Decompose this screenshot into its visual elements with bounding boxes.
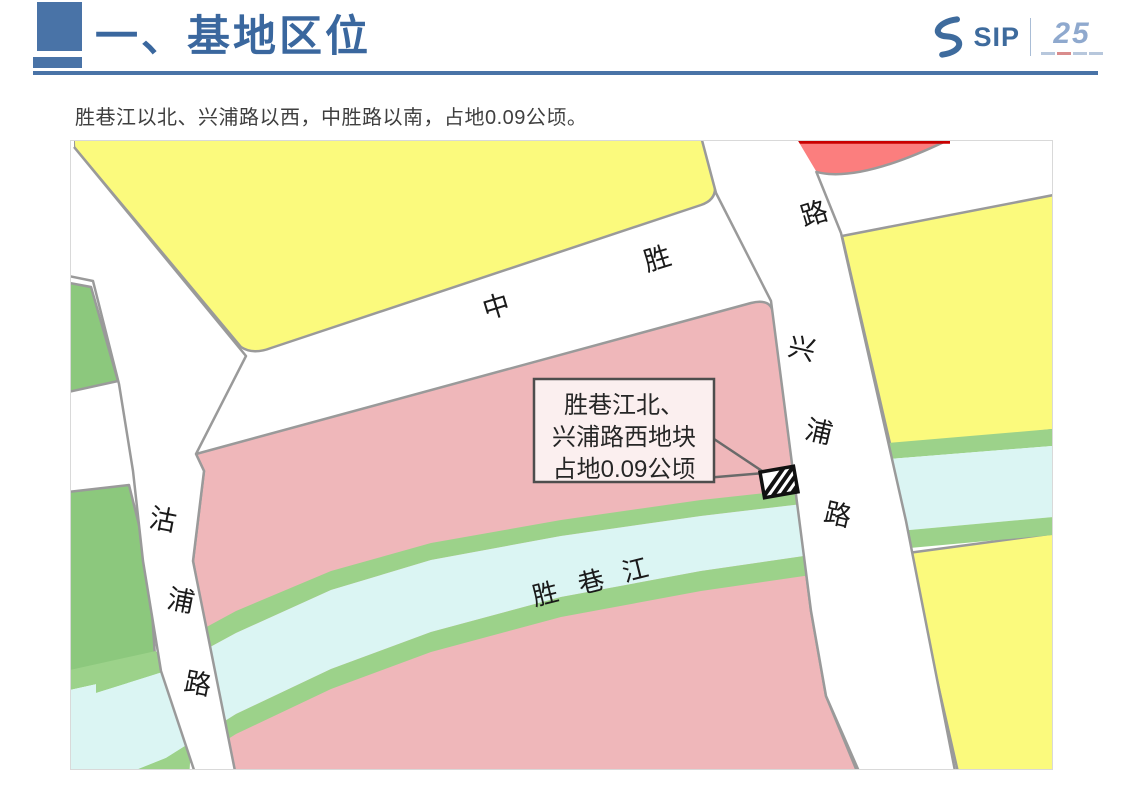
page-title: 一、基地区位: [95, 2, 371, 64]
intro-text: 胜巷江以北、兴浦路以西，中胜路以南，占地0.09公顷。: [75, 101, 587, 130]
svg-text:占地0.09公顷: 占地0.09公顷: [553, 456, 696, 483]
title-accent-square: [37, 2, 82, 51]
sip-swoosh-icon: [927, 16, 969, 58]
sip-wordmark: SIP: [973, 22, 1020, 53]
title-rule: [33, 71, 1098, 75]
svg-text:中: 中: [479, 289, 514, 326]
svg-text:浦: 浦: [165, 584, 197, 619]
svg-text:沽: 沽: [147, 503, 179, 538]
sip-logo: SIP 25: [927, 13, 1103, 61]
site-callout: 胜巷江北、 兴浦路西地块 占地0.09公顷: [534, 379, 714, 483]
anniversary-tagline: [1041, 52, 1103, 55]
svg-text:路: 路: [182, 667, 214, 702]
logo-divider: [1030, 18, 1031, 56]
title-accent-bar: [33, 57, 82, 68]
location-map: 中 胜 路 兴 浦 路 沽 浦 路 胜 巷 江 胜巷江北、 兴浦路西地块 占: [70, 140, 1053, 770]
svg-text:胜巷江北、: 胜巷江北、: [564, 392, 684, 419]
anniversary-25-icon: 25: [1041, 19, 1103, 55]
svg-text:胜: 胜: [640, 241, 675, 278]
svg-text:兴浦路西地块: 兴浦路西地块: [552, 424, 696, 451]
